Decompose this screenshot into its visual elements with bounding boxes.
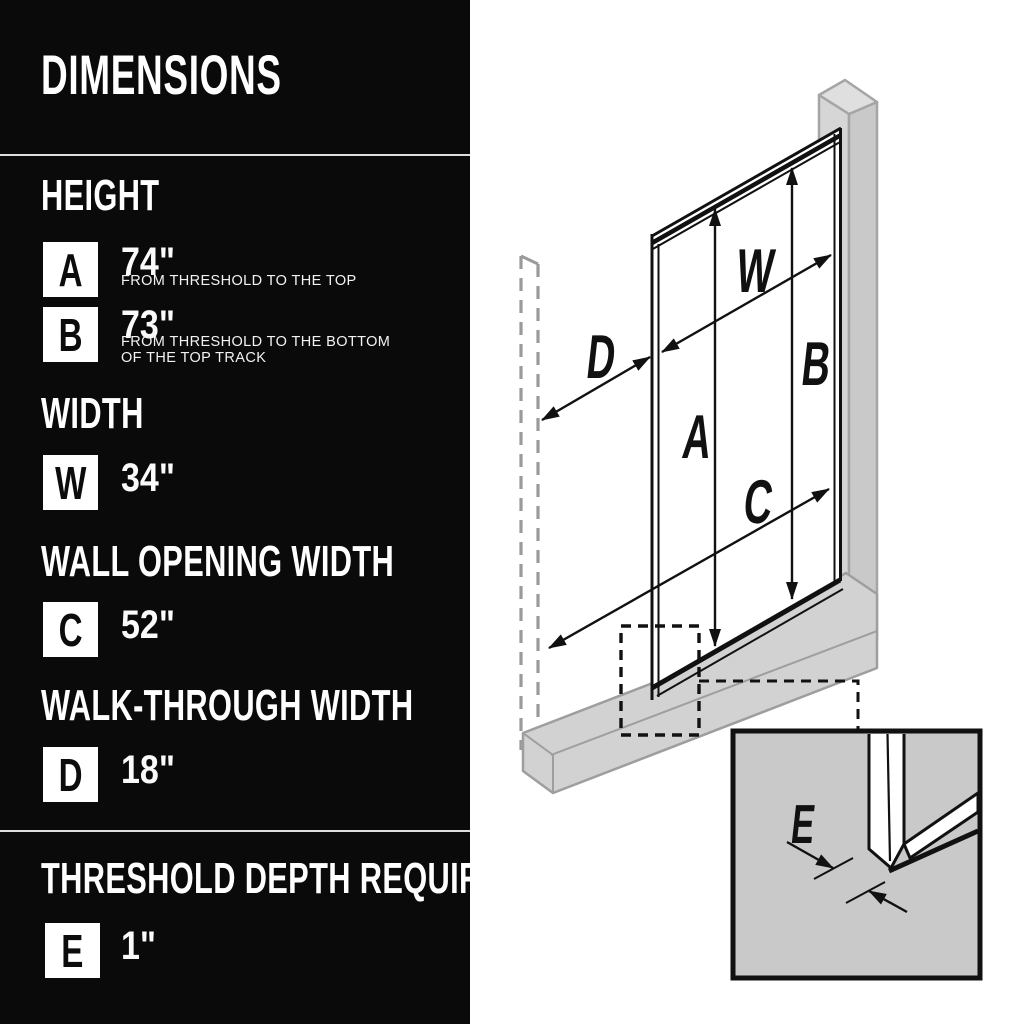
desc-b: FROM THRESHOLD TO THE BOTTOM OF THE TOP … — [121, 335, 390, 366]
desc-b-line1: FROM THRESHOLD TO THE BOTTOM — [121, 335, 390, 351]
divider-top — [0, 154, 470, 156]
section-header-wall-opening-width: WALL OPENING WIDTH — [41, 540, 545, 584]
desc-b-line2: OF THE TOP TRACK — [121, 351, 390, 367]
section-header-threshold-depth: THRESHOLD DEPTH REQUIRED — [41, 857, 733, 901]
page-title: DIMENSIONS — [41, 47, 406, 103]
value-c: 52" — [121, 605, 184, 645]
section-header-width: WIDTH — [41, 392, 188, 436]
dashed-wall-edge — [521, 256, 538, 750]
badge-a: A — [43, 242, 98, 297]
label-d: D — [583, 323, 619, 392]
badge-d: D — [43, 747, 98, 802]
badge-c: C — [43, 602, 98, 657]
value-w: 34" — [121, 458, 184, 498]
badge-w: W — [43, 455, 98, 510]
inset-door-frame-profile — [869, 734, 904, 868]
threshold-detail-inset: E — [733, 731, 980, 978]
value-d: 18" — [121, 750, 184, 790]
desc-a: FROM THRESHOLD TO THE TOP — [121, 274, 357, 290]
dimensions-panel: DIMENSIONS HEIGHT A 74" FROM THRESHOLD T… — [0, 0, 470, 1024]
section-header-height: HEIGHT — [41, 174, 210, 218]
badge-b: B — [43, 307, 98, 362]
section-header-walk-through-width: WALK-THROUGH WIDTH — [41, 684, 573, 728]
value-e: 1" — [121, 926, 162, 966]
dimensions-infographic: DIMENSIONS HEIGHT A 74" FROM THRESHOLD T… — [0, 0, 1024, 1024]
badge-e: E — [45, 923, 100, 978]
divider-bottom — [0, 830, 470, 832]
